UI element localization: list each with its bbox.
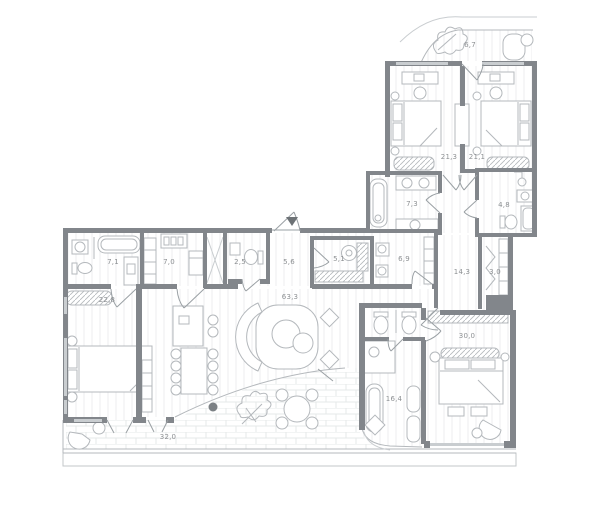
entry-marker	[286, 217, 298, 226]
toilet-icon	[500, 216, 505, 228]
bench-icon-master	[441, 348, 499, 359]
room-label-shower-room: 4,8	[498, 201, 510, 209]
coat-rack-icon-wardrobe-2	[357, 243, 368, 271]
outdoor-chair-icon	[276, 389, 288, 401]
chair-icon	[414, 87, 426, 99]
room-label-wc: 2,5	[234, 258, 246, 266]
dining-chair-icon	[208, 327, 218, 337]
room-label-terrace: 32,0	[160, 433, 176, 441]
room-label-bathroom-3: 6,9	[398, 255, 410, 263]
room-label-bathroom-2: 7,1	[107, 258, 119, 266]
column-icon	[209, 403, 218, 412]
chair-icon	[490, 87, 502, 99]
dining-chair-icon	[171, 361, 181, 371]
toilet-icon	[258, 251, 263, 264]
outdoor-chair-icon	[306, 417, 318, 429]
dining-chair-icon	[171, 385, 181, 395]
dining-chair-icon	[171, 373, 181, 383]
outdoor-chair-icon	[276, 417, 288, 429]
room-label-wardrobe: 5,1	[333, 255, 345, 263]
room-label-corridor: 14,3	[454, 268, 470, 276]
wardrobe-icon-bedroom-1	[394, 157, 434, 170]
room-label-bedroom-3: 22,8	[99, 296, 115, 304]
floor-plan-page: 6,7 21,3 21,1 7,3 4,8 7,1 7,0 2,5 5,6 5,…	[0, 0, 600, 525]
coat-rack-icon-wardrobe	[315, 271, 363, 282]
coffee-table-icon	[293, 333, 313, 353]
outdoor-table-icon	[284, 396, 310, 422]
vanity-icon	[124, 257, 138, 285]
room-label-closet: 3,0	[489, 268, 501, 276]
room-label-entry-hall: 5,6	[283, 258, 295, 266]
stool-icon	[448, 407, 464, 416]
sink-icon	[407, 416, 420, 442]
room-label-balcony: 6,7	[464, 41, 476, 49]
room-label-kitchen: 7,0	[163, 258, 175, 266]
side-table-icon	[93, 422, 105, 434]
furniture-dining	[171, 306, 218, 395]
builtin-closet-icon	[455, 104, 469, 146]
side-table-icon	[472, 428, 482, 438]
stool-icon	[471, 407, 487, 416]
room-label-bedroom-1: 21,3	[441, 153, 457, 161]
toilet-icon	[72, 263, 77, 274]
room-label-bedroom-2: 21,1	[469, 153, 485, 161]
floor-plan-drawing	[0, 0, 600, 525]
dining-chair-icon	[208, 373, 218, 383]
dining-chair-icon	[171, 349, 181, 359]
outdoor-chair-icon	[306, 389, 318, 401]
sink-icon	[230, 243, 240, 255]
room-label-living-room: 63,3	[282, 293, 298, 301]
fascia-strip	[63, 453, 516, 466]
dining-table-icon	[181, 348, 207, 394]
dining-chair-icon	[208, 349, 218, 359]
fridge-icon	[189, 251, 203, 275]
sink-icon	[407, 386, 420, 412]
dining-chair-icon	[208, 315, 218, 325]
vanity-icon	[364, 341, 395, 373]
dining-chair-icon	[208, 361, 218, 371]
cabinets-icon	[144, 238, 156, 284]
kitchen-island-icon	[173, 306, 203, 346]
room-label-master-bedroom: 30,0	[459, 332, 475, 340]
room-label-bathroom-1: 7,3	[406, 200, 418, 208]
dining-chair-icon	[208, 385, 218, 395]
room-label-master-bathroom: 16,4	[386, 395, 402, 403]
side-table-icon	[521, 34, 533, 46]
